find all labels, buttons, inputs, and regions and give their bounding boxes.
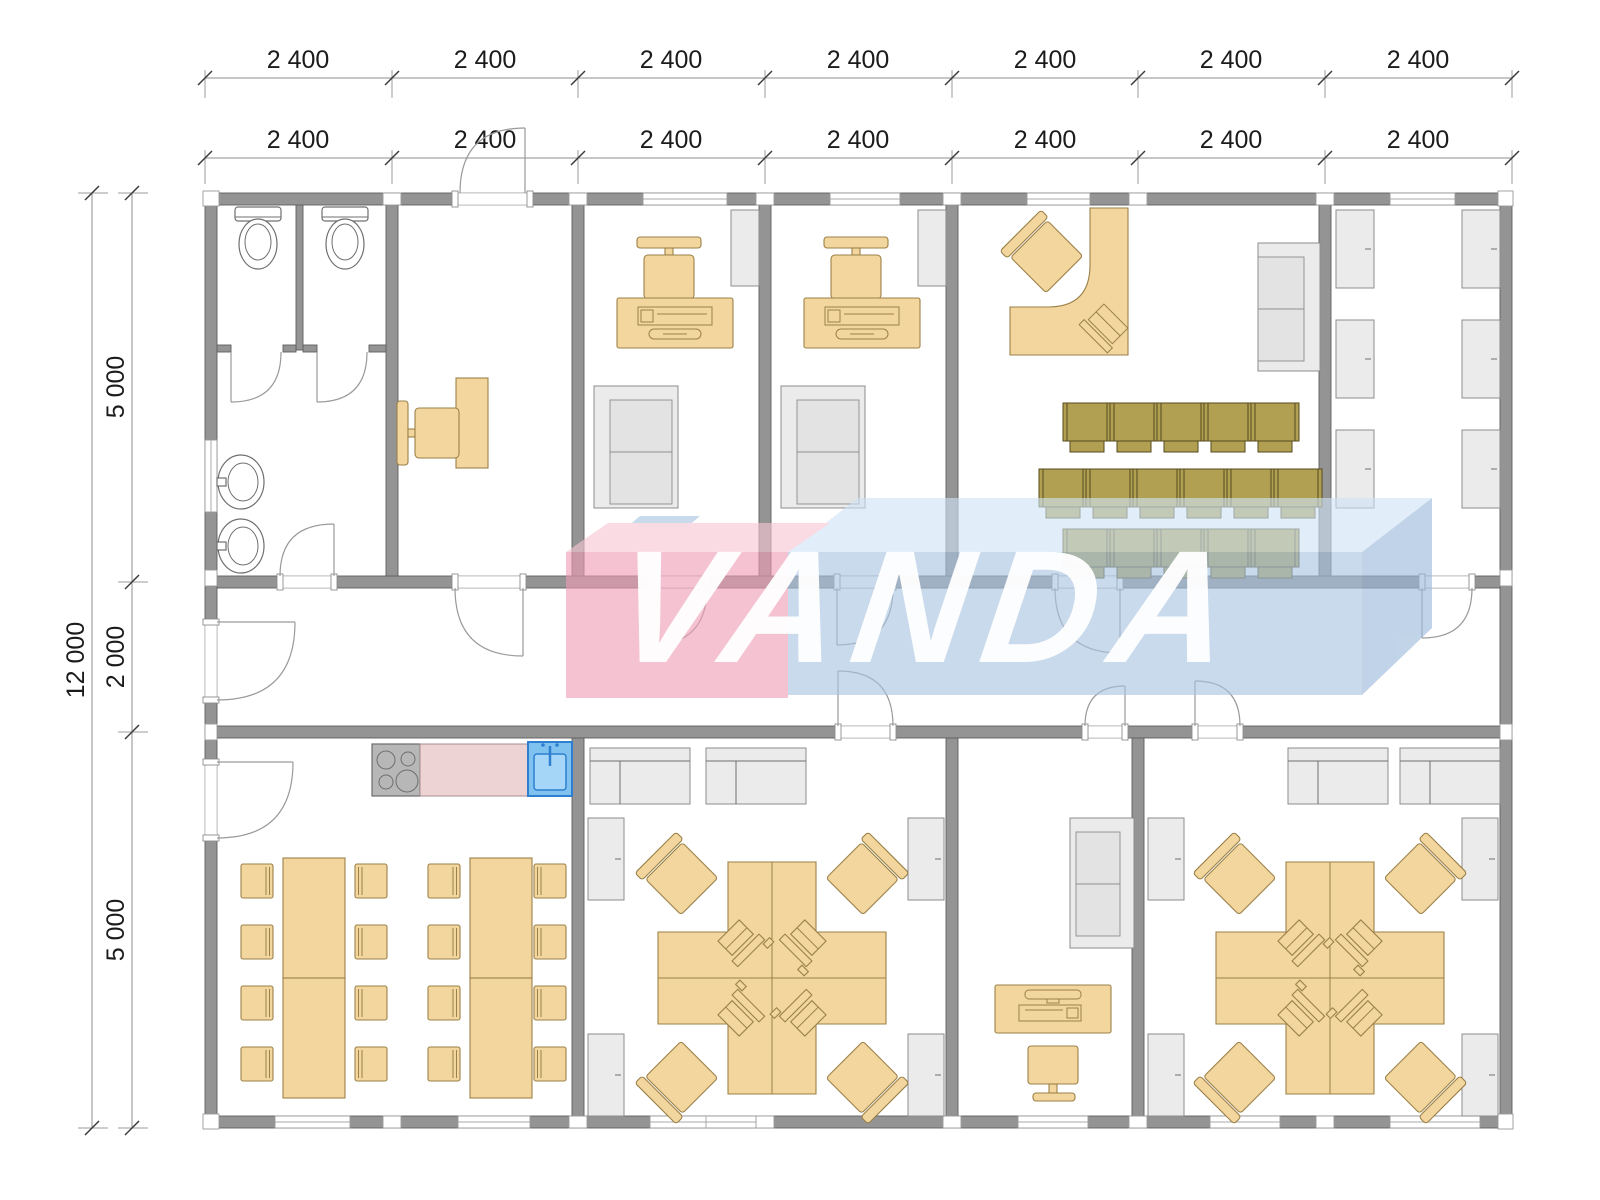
office-chair-icon — [635, 832, 720, 917]
office-chair-icon — [1000, 210, 1085, 295]
cabinet-icon — [908, 818, 944, 900]
dining-chair-icon — [355, 1047, 387, 1081]
dim-label: 2 400 — [267, 126, 330, 154]
dim-label: 2 400 — [640, 126, 703, 154]
watermark-text: VANDA — [604, 518, 1256, 697]
cabinet-icon — [731, 210, 759, 286]
office-chair-icon — [1193, 832, 1278, 917]
dim-label: 2 400 — [1200, 46, 1263, 74]
dining-chair-icon — [355, 864, 387, 898]
cabinet-icon — [1462, 1034, 1498, 1116]
office-chair-icon — [637, 237, 701, 299]
room-wc — [217, 207, 368, 573]
dim-label-total-height: 12 000 — [62, 622, 90, 698]
exterior-door — [203, 619, 295, 703]
sofa-icon — [594, 386, 678, 508]
room-open-office-right — [1148, 748, 1500, 1124]
dining-table — [283, 858, 345, 1098]
meeting-chair-icon — [1204, 403, 1252, 452]
dim-label: 2 400 — [1387, 46, 1450, 74]
dim-label-upper-band: 5 000 — [102, 356, 130, 419]
dining-chair-icon — [241, 864, 273, 898]
window — [1027, 193, 1090, 205]
dim-label: 2 400 — [1014, 46, 1077, 74]
dining-chair-icon — [241, 986, 273, 1020]
meeting-chair-icon — [1110, 403, 1158, 452]
washbasin-icon — [217, 519, 264, 573]
room-private-office-2 — [781, 210, 946, 508]
window — [1390, 193, 1455, 205]
washbasin-icon — [217, 455, 264, 509]
dim-label: 2 400 — [1387, 126, 1450, 154]
office-chair-icon — [1382, 1039, 1467, 1124]
window — [1390, 1116, 1480, 1128]
room-storage — [1336, 210, 1500, 508]
dining-chair-icon — [355, 986, 387, 1020]
window — [1018, 1116, 1088, 1128]
desk — [995, 985, 1111, 1033]
cabinet-icon — [1462, 818, 1498, 900]
office-chair-icon — [1028, 1046, 1078, 1101]
dim-label: 2 400 — [1200, 126, 1263, 154]
wc-stall-door — [317, 352, 367, 402]
floor-plan-page: 2 400 2 400 2 400 2 400 2 400 2 400 2 40… — [0, 0, 1600, 1200]
dining-chair-icon — [241, 1047, 273, 1081]
dim-label: 2 400 — [827, 46, 890, 74]
dining-chair-icon — [534, 925, 566, 959]
room-open-office-left — [588, 748, 944, 1124]
toilet-icon — [235, 207, 281, 269]
window — [830, 193, 900, 205]
dim-label: 2 400 — [640, 46, 703, 74]
office-chair-icon — [1382, 832, 1467, 917]
dim-label: 2 400 — [454, 126, 517, 154]
cabinet-icon — [1336, 320, 1374, 398]
office-chair-icon — [824, 237, 888, 299]
cabinet-icon — [918, 210, 946, 286]
dim-label-lower-band: 5 000 — [102, 899, 130, 962]
dining-chair-icon — [534, 986, 566, 1020]
dim-label: 2 400 — [827, 126, 890, 154]
cabinet-icon — [1148, 1034, 1184, 1116]
cabinet-icon — [706, 748, 806, 804]
washroom-door — [277, 524, 337, 590]
room-door — [452, 574, 526, 656]
watermark: VANDA — [566, 498, 1432, 698]
desk — [456, 378, 488, 468]
office-chair-icon — [1193, 1039, 1278, 1124]
cabinet-icon — [588, 818, 624, 900]
room-private-office-1 — [594, 210, 759, 508]
sofa-icon — [1258, 243, 1320, 371]
cabinet-icon — [1148, 818, 1184, 900]
office-chair-icon — [635, 1039, 720, 1124]
window — [650, 1116, 762, 1128]
meeting-chair-icon — [1063, 403, 1111, 452]
cabinet-icon — [1288, 748, 1388, 804]
workstation-cluster — [635, 832, 909, 1124]
desk — [804, 298, 920, 348]
room-canteen — [241, 742, 572, 1098]
toilet-icon — [322, 207, 368, 269]
office-chair-icon — [824, 832, 909, 917]
dim-label-corridor: 2 000 — [102, 626, 130, 689]
window — [275, 1116, 350, 1128]
cabinet-icon — [1400, 748, 1500, 804]
wc-stall-door — [231, 352, 281, 402]
dimension-ticks-row1 — [198, 70, 1519, 98]
office-chair-icon — [824, 1039, 909, 1124]
dining-chair-icon — [534, 864, 566, 898]
window — [1210, 1116, 1280, 1128]
office-chair-icon — [397, 401, 459, 465]
dining-table — [470, 858, 532, 1098]
cabinet-icon — [588, 1034, 624, 1116]
meeting-chair-icon — [1251, 403, 1299, 452]
dim-label: 2 400 — [267, 46, 330, 74]
dining-chair-icon — [428, 864, 460, 898]
floor-plan-canvas: 2 400 2 400 2 400 2 400 2 400 2 400 2 40… — [0, 0, 1600, 1200]
dining-chair-icon — [355, 925, 387, 959]
desk — [617, 298, 733, 348]
dim-label: 2 400 — [1014, 126, 1077, 154]
dim-label: 2 400 — [454, 46, 517, 74]
dining-chair-icon — [534, 1047, 566, 1081]
cabinet-icon — [1336, 430, 1374, 508]
window — [643, 193, 727, 205]
dining-chair-icon — [428, 1047, 460, 1081]
dining-chair-icon — [428, 925, 460, 959]
cabinet-icon — [1462, 320, 1500, 398]
window — [458, 1116, 530, 1128]
window — [205, 440, 217, 512]
stove-icon — [372, 744, 420, 796]
cabinet-icon — [908, 1034, 944, 1116]
dimension-ticks-row2 — [198, 150, 1519, 184]
meeting-chair-icon — [1157, 403, 1205, 452]
cabinet-icon — [1462, 210, 1500, 288]
cabinet-icon — [1462, 430, 1500, 508]
kitchen-counter — [420, 744, 528, 796]
room-small-office — [397, 378, 488, 468]
cabinet-icon — [590, 748, 690, 804]
room-small-office-lower — [995, 818, 1134, 1101]
dining-chair-icon — [428, 986, 460, 1020]
sofa-icon — [781, 386, 865, 508]
exterior-door — [203, 759, 293, 841]
cabinet-icon — [1336, 210, 1374, 288]
sofa-icon — [1070, 818, 1134, 948]
workstation-cluster — [1193, 832, 1467, 1124]
kitchen-sink-icon — [528, 742, 572, 796]
dining-chair-icon — [241, 925, 273, 959]
